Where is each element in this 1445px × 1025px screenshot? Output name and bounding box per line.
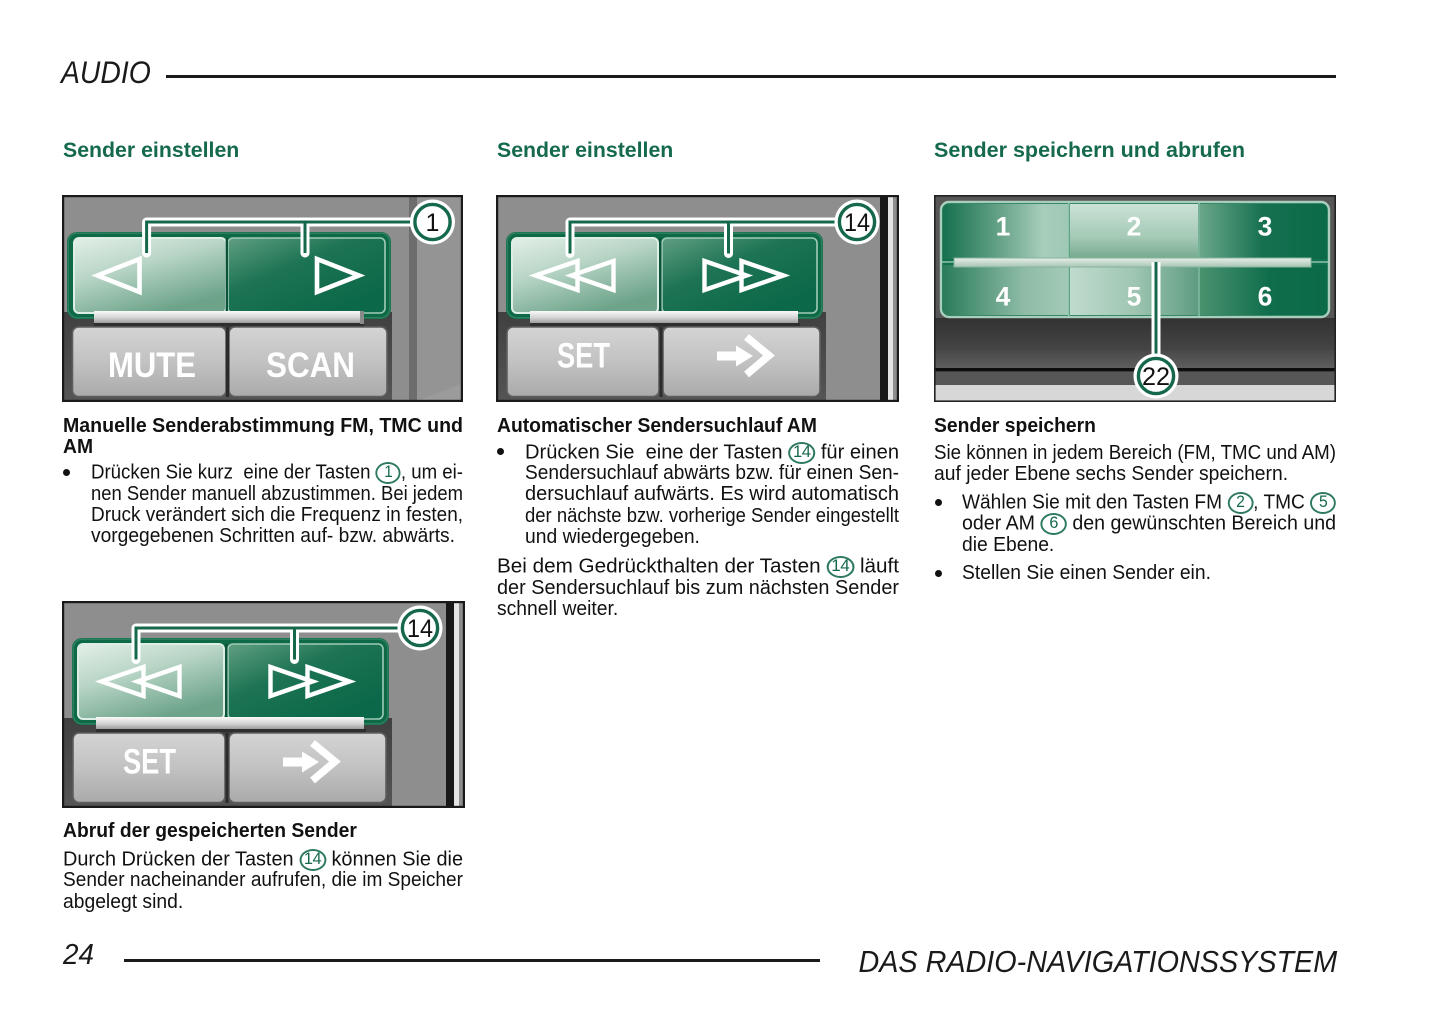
svg-text:SCAN: SCAN — [266, 346, 355, 385]
svg-text:4: 4 — [996, 282, 1011, 312]
svg-text:2: 2 — [1127, 212, 1142, 242]
svg-text:22: 22 — [1142, 363, 1170, 391]
svg-text:1: 1 — [996, 212, 1011, 242]
svg-text:MUTE: MUTE — [108, 346, 196, 385]
svg-text:5: 5 — [1127, 282, 1142, 312]
svg-text:14: 14 — [407, 615, 433, 643]
svg-text:SET: SET — [557, 337, 610, 376]
svg-text:1: 1 — [426, 209, 440, 237]
svg-text:14: 14 — [844, 209, 870, 237]
svg-text:6: 6 — [1258, 282, 1273, 312]
svg-text:SET: SET — [123, 743, 176, 782]
svg-text:3: 3 — [1258, 212, 1273, 242]
